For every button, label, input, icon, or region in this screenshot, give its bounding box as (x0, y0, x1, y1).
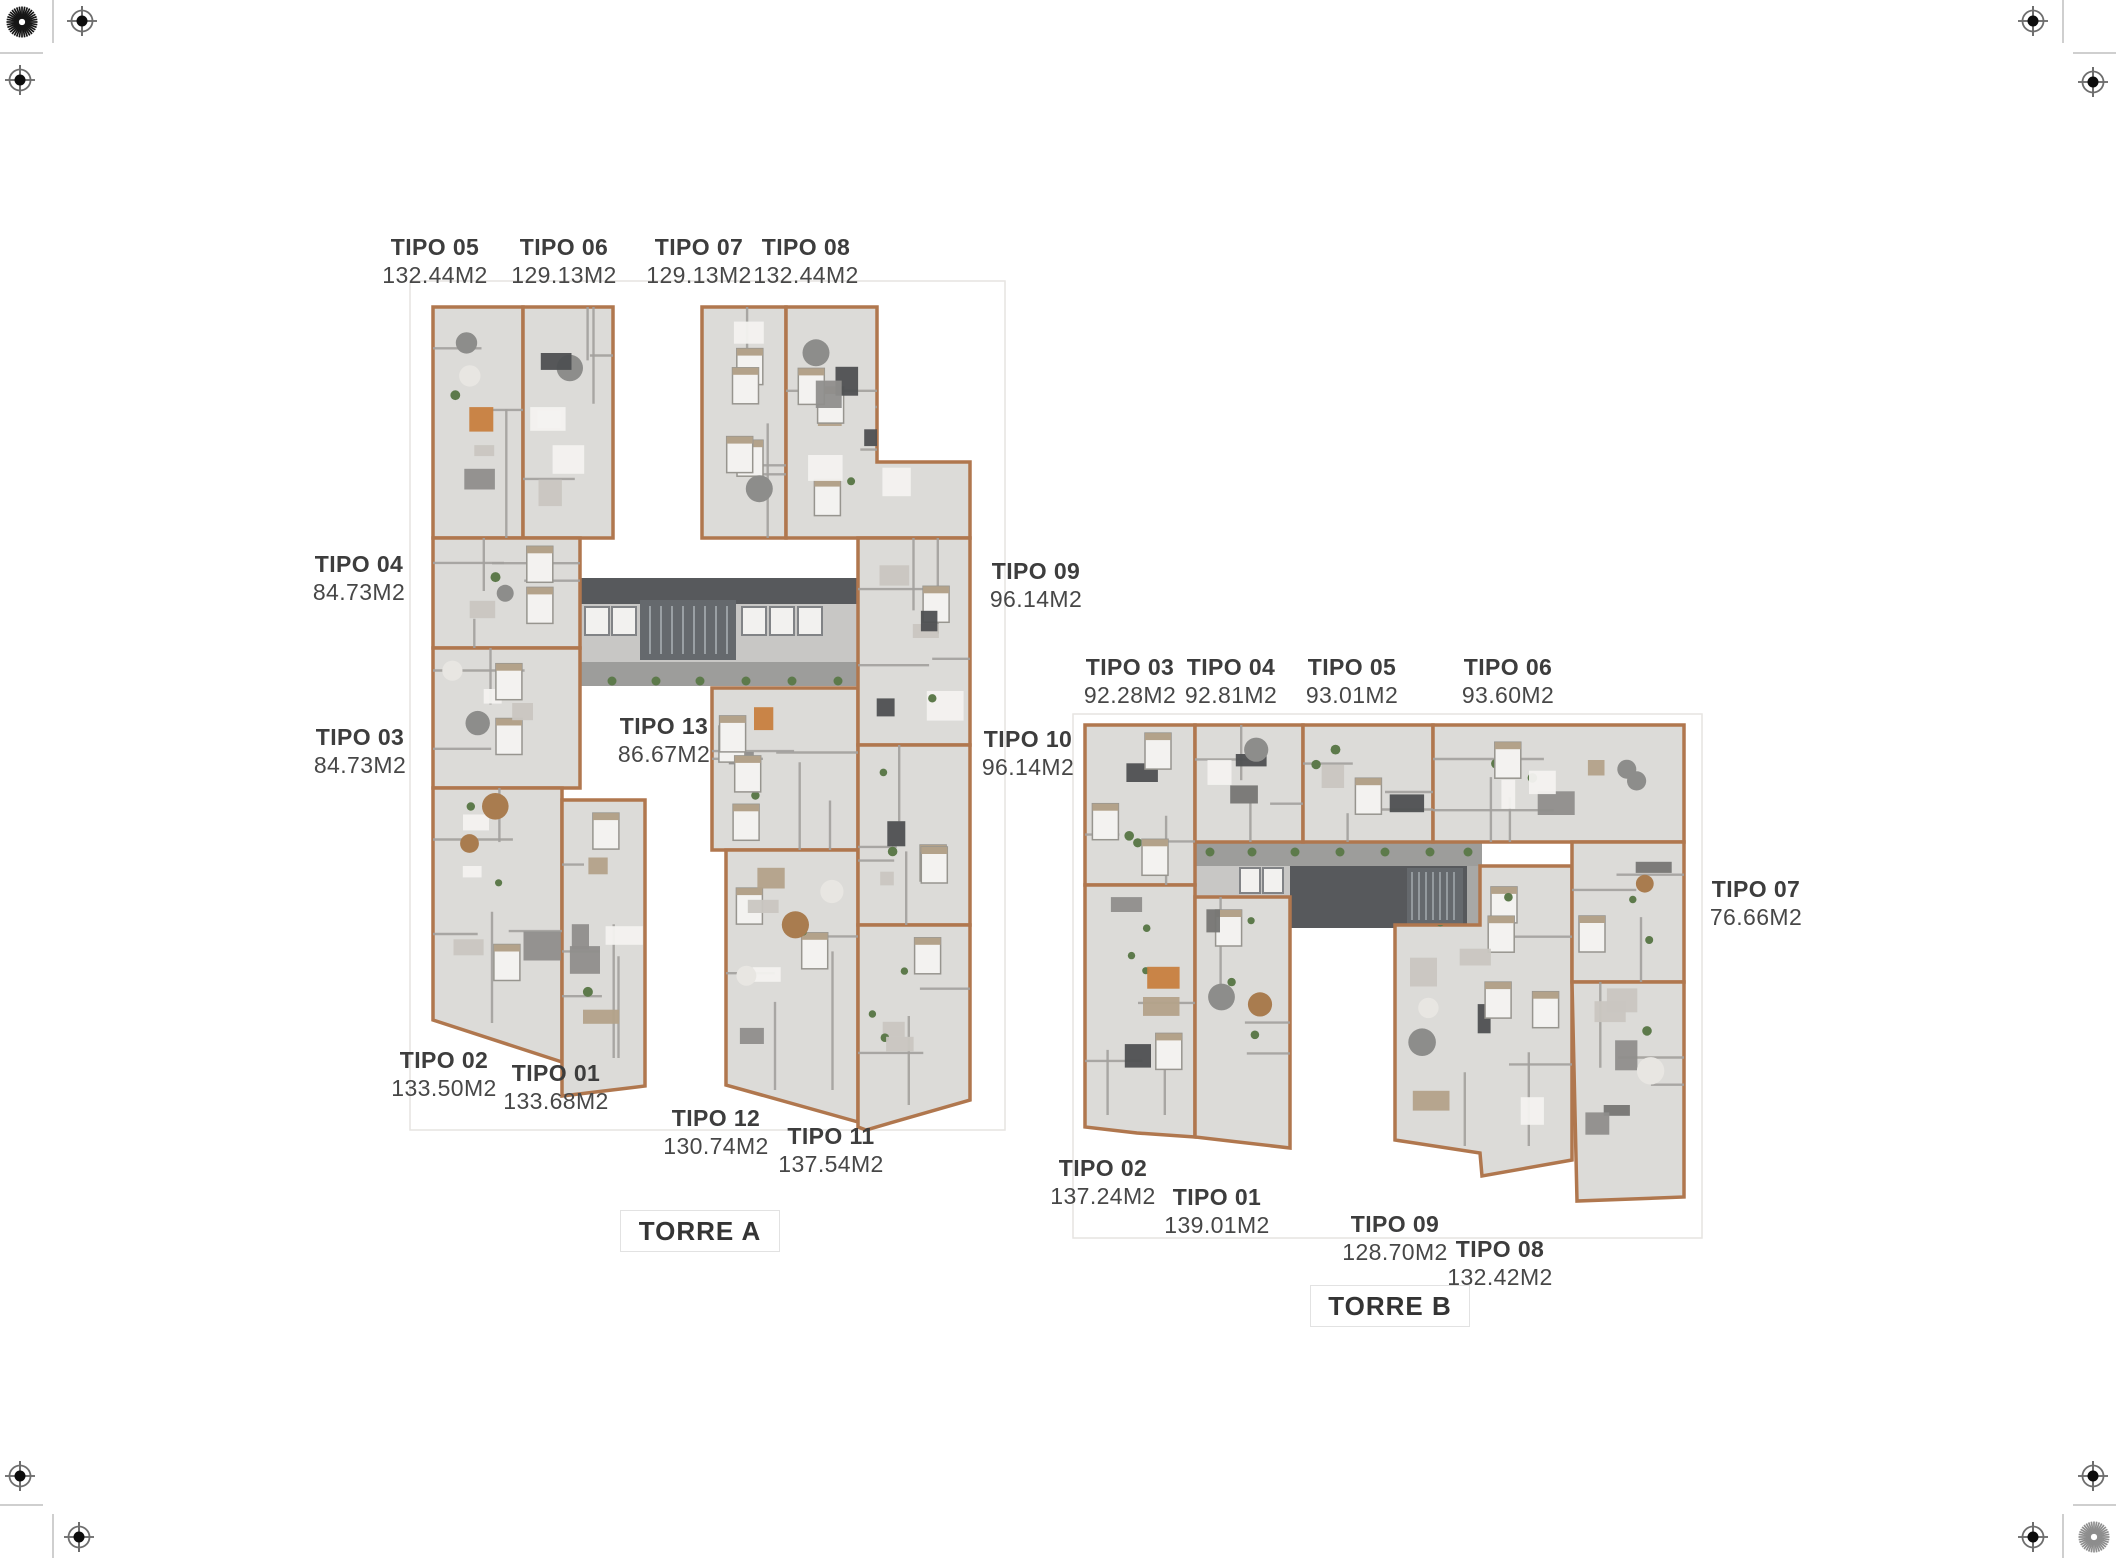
unit-a10-outline (858, 745, 970, 925)
torre-b-elevator (1240, 868, 1260, 893)
torre-a-floorplan (433, 307, 970, 1130)
torre-a-elevator (770, 607, 794, 635)
torre-b-label-box[interactable]: TORRE B (1310, 1285, 1470, 1327)
page-corner-guides (0, 0, 2116, 1558)
torre-a-label-box[interactable]: TORRE A (620, 1210, 780, 1252)
registration-starburst-icon (7, 7, 38, 38)
torre-a-stairs (640, 600, 736, 660)
registration-crosshair-icon (2078, 1461, 2108, 1491)
registration-crosshair-icon (64, 1522, 94, 1552)
registration-crosshair-icon (2078, 67, 2108, 97)
registration-crosshair-icon (2018, 6, 2048, 36)
torre-a-elevator (612, 607, 636, 635)
unit-b06-outline (1433, 725, 1684, 842)
torre-b-elevator (1263, 868, 1283, 893)
floorplan-page: TIPO 05132.44M2TIPO 06129.13M2TIPO 07129… (0, 0, 2116, 1558)
torre-a-elevator (585, 607, 609, 635)
registration-crosshair-icon (5, 1461, 35, 1491)
torre-a-elevator (742, 607, 766, 635)
torre-a-label: TORRE A (639, 1216, 762, 1247)
registration-crosshair-icon (2018, 1522, 2048, 1552)
floorplans-graphic (0, 0, 2116, 1558)
torre-b-floorplan (1085, 725, 1684, 1201)
unit-b08-outline (1572, 982, 1684, 1201)
torre-b-label: TORRE B (1328, 1291, 1452, 1322)
torre-a-elevator (798, 607, 822, 635)
registration-starburst-icon (2079, 1522, 2110, 1553)
registration-crosshair-icon (67, 6, 97, 36)
torre-a-corridor (545, 578, 862, 686)
unit-a02-outline (433, 788, 562, 1062)
registration-crosshair-icon (5, 65, 35, 95)
